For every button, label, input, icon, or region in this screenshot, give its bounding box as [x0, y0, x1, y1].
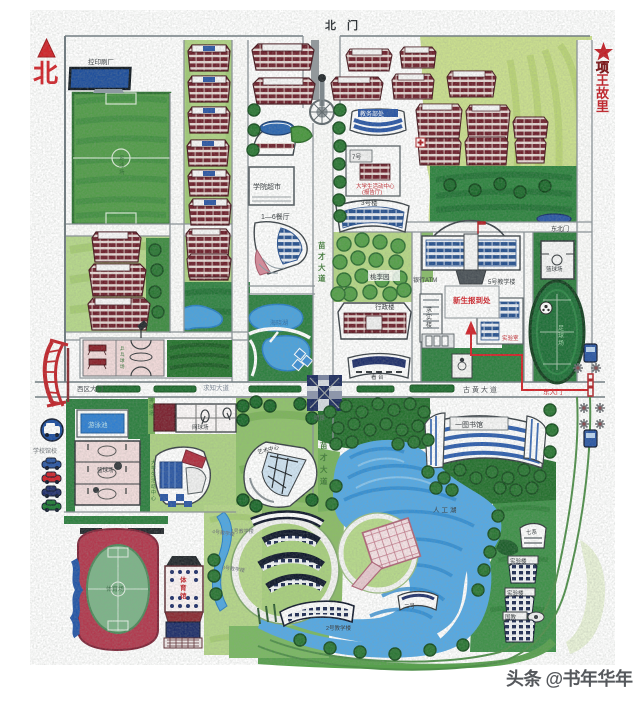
- svg-text:头条 @书年华年: 头条 @书年华年: [506, 668, 633, 689]
